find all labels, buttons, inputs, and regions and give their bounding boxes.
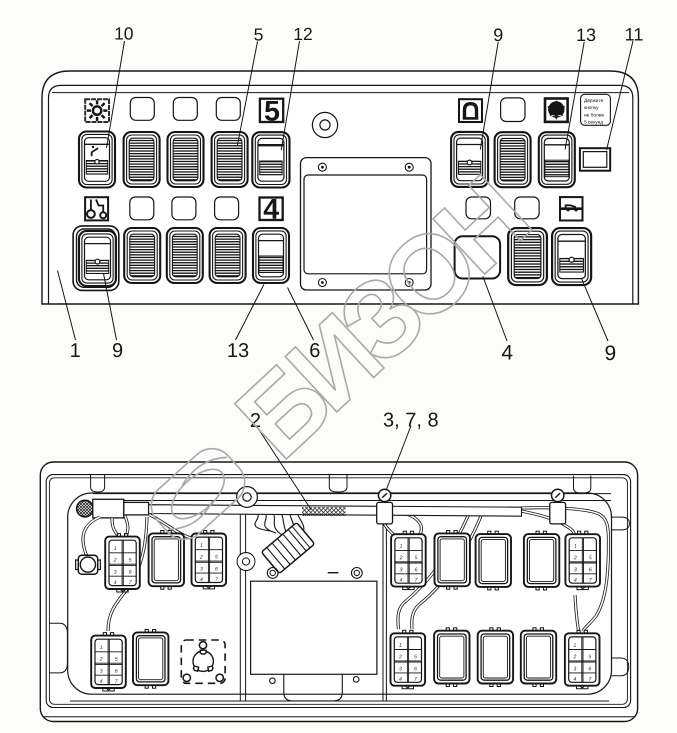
svg-text:10: 10 xyxy=(114,24,134,44)
svg-text:9: 9 xyxy=(112,340,123,362)
svg-text:9: 9 xyxy=(493,25,503,45)
svg-text:Держите: Держите xyxy=(584,98,604,104)
svg-text:5 секунд: 5 секунд xyxy=(584,120,603,126)
svg-text:12: 12 xyxy=(293,24,312,44)
svg-text:13: 13 xyxy=(576,25,596,45)
svg-text:9: 9 xyxy=(604,342,616,365)
svg-text:4: 4 xyxy=(501,342,513,365)
svg-text:11: 11 xyxy=(625,25,644,45)
svg-text:13: 13 xyxy=(227,340,249,362)
svg-text:кнопку: кнопку xyxy=(584,106,599,111)
svg-text:1: 1 xyxy=(70,340,81,362)
svg-text:не более: не более xyxy=(584,112,604,118)
svg-text:3, 7, 8: 3, 7, 8 xyxy=(383,410,439,432)
svg-text:5: 5 xyxy=(254,25,264,45)
